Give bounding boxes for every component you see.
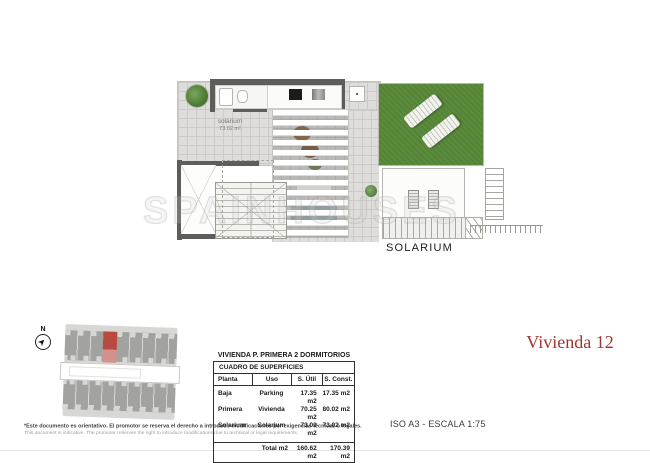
service-box bbox=[349, 86, 365, 102]
compass-icon: ➤ bbox=[35, 334, 51, 350]
cell-const: 17.35 m2 bbox=[322, 390, 354, 405]
storage-room bbox=[215, 85, 269, 109]
bbq-appliance bbox=[289, 89, 302, 100]
pool-outline bbox=[69, 366, 141, 379]
toilet bbox=[237, 90, 248, 103]
cell-util: 17.35 m2 bbox=[291, 390, 322, 405]
north-indicator: N ➤ bbox=[34, 326, 52, 350]
plant bbox=[186, 85, 208, 107]
table-header-row: Planta Uso S. Útil S. Const. bbox=[214, 374, 354, 386]
artificial-grass bbox=[378, 83, 484, 166]
cell-util: 70.25 m2 bbox=[291, 406, 322, 421]
drain-dot bbox=[356, 93, 358, 95]
watermark: SPAINHOUSES bbox=[143, 190, 553, 233]
col-header: Planta bbox=[214, 374, 252, 385]
highlighted-unit bbox=[102, 331, 117, 362]
surfaces-table: VIVIENDA P. PRIMERA 2 DORMITORIOS CUADRO… bbox=[213, 352, 355, 463]
col-header: S. Útil bbox=[291, 374, 322, 385]
plan-caption: SOLARIUM bbox=[357, 242, 482, 254]
site-location-plan bbox=[56, 322, 183, 422]
sink-appliance bbox=[312, 89, 325, 100]
total-const: 170.39 m2 bbox=[322, 445, 354, 460]
col-header: Uso bbox=[252, 374, 291, 385]
cell-planta: Primera bbox=[214, 406, 252, 421]
disclaimer-es: *Este documento es orientativo. El promo… bbox=[24, 423, 574, 429]
table-subtitle: CUADRO DE SUPERFICIES bbox=[214, 362, 354, 374]
room-name: solarium bbox=[185, 118, 275, 126]
table-title: VIVIENDA P. PRIMERA 2 DORMITORIOS bbox=[213, 352, 355, 359]
outdoor-kitchen-counter bbox=[267, 85, 342, 109]
disclaimer: *Este documento es orientativo. El promo… bbox=[24, 423, 574, 435]
total-label: Total m2 bbox=[214, 445, 291, 460]
table-row: Primera Vivienda 70.25 m2 80.02 m2 bbox=[214, 406, 354, 421]
table-row: Baja Parking 17.35 m2 17.35 m2 bbox=[214, 390, 354, 405]
table-total-row: Total m2 160.62 m2 170.39 m2 bbox=[214, 442, 354, 462]
unit-title: Vivienda 12 bbox=[495, 332, 645, 353]
shower-tray bbox=[219, 88, 233, 106]
sun-lounger bbox=[421, 113, 461, 149]
cell-planta: Baja bbox=[214, 390, 252, 405]
disclaimer-en: This document is indicative. The promote… bbox=[24, 430, 574, 436]
table-box: CUADRO DE SUPERFICIES Planta Uso S. Útil… bbox=[213, 361, 355, 463]
total-util: 160.62 m2 bbox=[291, 445, 322, 460]
north-label: N bbox=[34, 326, 52, 333]
compass-arrow-icon: ➤ bbox=[34, 335, 48, 349]
col-header: S. Const. bbox=[322, 374, 354, 385]
room-area: 73.02 m² bbox=[185, 126, 275, 133]
cell-uso: Parking bbox=[252, 390, 291, 405]
cell-const: 80.02 m2 bbox=[322, 406, 354, 421]
room-label: solarium 73.02 m² bbox=[185, 118, 275, 133]
cell-uso: Vivienda bbox=[252, 406, 291, 421]
